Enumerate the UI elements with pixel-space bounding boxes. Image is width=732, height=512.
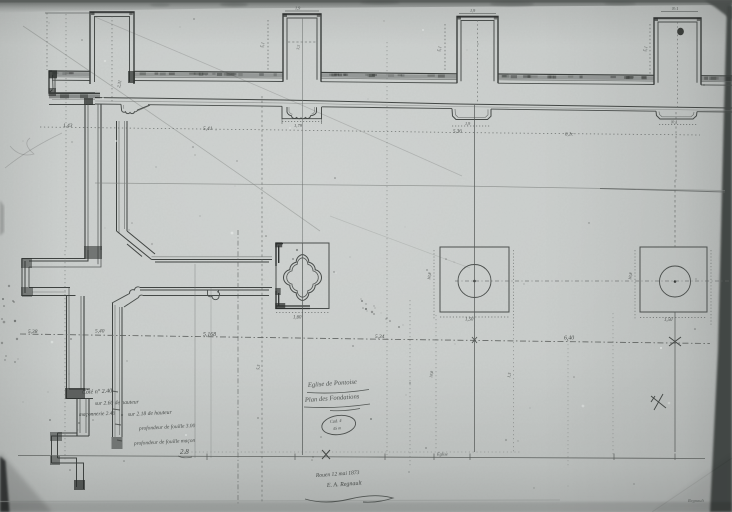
svg-text:1,60: 1,60 bbox=[293, 316, 302, 321]
svg-text:5,38: 5,38 bbox=[28, 329, 38, 335]
svg-text:2.8: 2.8 bbox=[180, 448, 189, 456]
svg-text:6,40: 6,40 bbox=[564, 335, 574, 342]
svg-text:Eglise: Eglise bbox=[436, 452, 448, 457]
svg-text:45 m: 45 m bbox=[333, 425, 342, 431]
svg-text:1,50: 1,50 bbox=[465, 318, 474, 323]
svg-text:5,36: 5,36 bbox=[453, 130, 462, 135]
svg-text:5,168: 5,168 bbox=[203, 332, 216, 338]
svg-text:1,43: 1,43 bbox=[63, 123, 73, 129]
svg-text:1,50: 1,50 bbox=[664, 318, 673, 323]
svg-text:N:1: N:1 bbox=[671, 6, 678, 11]
svg-text:5,40: 5,40 bbox=[95, 329, 105, 335]
svg-text:Regnault: Regnault bbox=[687, 498, 705, 503]
svg-text:6,1c: 6,1c bbox=[565, 133, 574, 138]
svg-text:maçonnerie 2.40: maçonnerie 2.40 bbox=[79, 411, 116, 418]
svg-text:5,34: 5,34 bbox=[375, 334, 385, 340]
svg-text:5,41: 5,41 bbox=[203, 126, 213, 132]
